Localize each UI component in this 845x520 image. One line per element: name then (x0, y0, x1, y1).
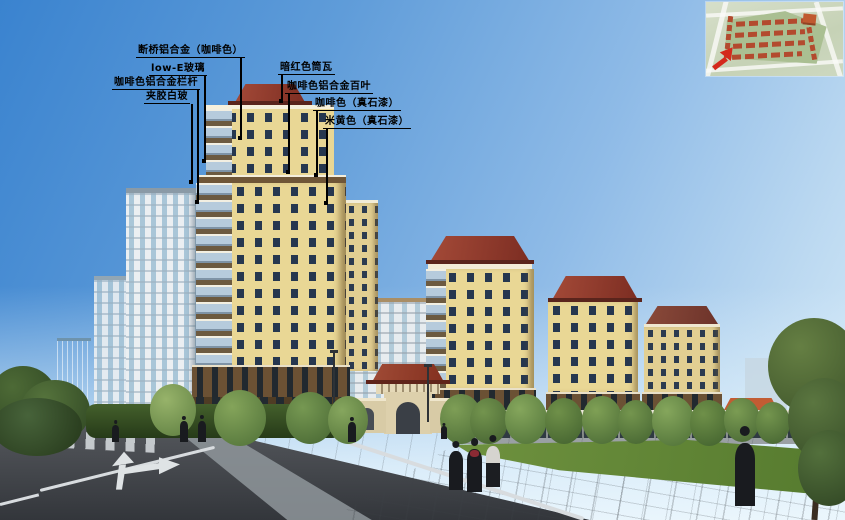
leader-line-thermal-break (240, 58, 242, 138)
person-silhouette-white-shirt (486, 435, 500, 487)
tree-row-retail (690, 400, 728, 446)
leader-dot-laminated-glass (189, 180, 193, 184)
arrow-stem (712, 57, 728, 71)
leader-dot-dark-red-tile (279, 99, 283, 103)
leader-dot-thermal-break (238, 136, 242, 140)
hero-upper-balconies (206, 109, 232, 179)
leader-dot-coffee-stone (314, 173, 318, 177)
architectural-rendering: 断桥铝合金（咖啡色） low-E玻璃 咖啡色铝合金栏杆 夹胶白玻 暗红色筒瓦 咖… (0, 0, 845, 520)
person-silhouette-foreground (735, 426, 755, 506)
leader-line-laminated-glass (191, 104, 193, 182)
annotation-coffee-louver: 咖啡色铝合金百叶 (285, 81, 373, 94)
leader-line-low-e (204, 76, 206, 161)
annotation-low-e-glass: low-E玻璃 (149, 63, 207, 76)
hero-tower-podium (192, 365, 350, 401)
hero-tower-upper-block (206, 105, 334, 179)
annotation-thermal-break-aluminum: 断桥铝合金（咖啡色） (136, 45, 245, 58)
tree-row-retail (618, 400, 654, 444)
leader-line-railing (197, 90, 199, 202)
tree (214, 390, 266, 446)
tree-row-retail (582, 396, 622, 444)
red-arrow-pointer-icon (710, 46, 736, 72)
person-silhouette (449, 441, 463, 490)
tree-row-retail (756, 402, 790, 444)
annotation-laminated-white-glass: 夹胶白玻 (144, 91, 190, 104)
tree (286, 392, 334, 444)
leader-line-dark-red-tile (281, 75, 283, 101)
annotation-dark-red-tile: 暗红色筒瓦 (278, 62, 335, 75)
site-plan-corner-building (802, 13, 816, 25)
street-lamp (427, 366, 429, 422)
person-silhouette (180, 416, 188, 442)
annotation-coffee-aluminum-railing: 咖啡色铝合金栏杆 (112, 77, 200, 90)
leader-line-beige-stone (326, 129, 328, 203)
tree-row-retail (505, 394, 547, 444)
tree-row-retail (545, 398, 583, 444)
person-silhouette (112, 420, 119, 442)
right-tower2-body (644, 324, 720, 395)
annotation-coffee-stone-paint: 咖啡色（真石漆） (313, 98, 401, 111)
person-silhouette (198, 415, 206, 442)
right-tower2-roof (646, 306, 718, 324)
leader-line-coffee-stone (316, 111, 318, 175)
road-arrow-marking (86, 450, 196, 494)
hero-tower-lower-block (196, 183, 346, 367)
person-silhouette (441, 423, 447, 439)
person-silhouette (348, 417, 356, 442)
gate-archway (396, 402, 420, 434)
leader-dot-low-e (202, 159, 206, 163)
center-tower-roof (430, 236, 530, 262)
person-silhouette-red-scarf (467, 438, 482, 492)
annotation-beige-stone-paint: 米黄色（真石漆） (323, 116, 411, 129)
tree-row-retail (652, 396, 694, 446)
leader-line-coffee-louver (288, 94, 290, 172)
right-tower1-body (548, 302, 638, 392)
tree (150, 384, 196, 436)
leader-dot-beige-stone (324, 201, 328, 205)
leader-dot-coffee-louver (286, 170, 290, 174)
hero-lower-balconies (196, 183, 232, 367)
right-tower1-roof (552, 276, 638, 300)
leader-dot-railing (195, 200, 199, 204)
site-plan-inset (706, 2, 843, 76)
